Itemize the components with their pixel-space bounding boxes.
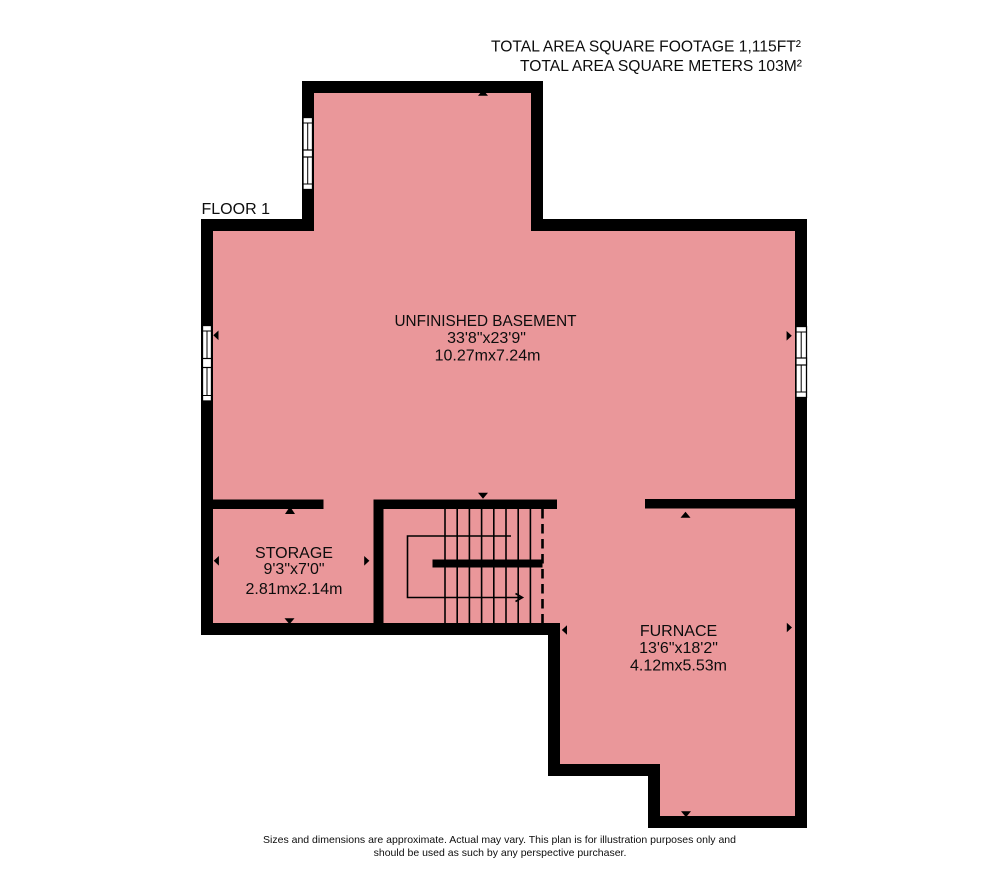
svg-text:STORAGE: STORAGE (255, 545, 333, 562)
svg-text:TOTAL AREA SQUARE FOOTAGE 1,11: TOTAL AREA SQUARE FOOTAGE 1,115FT² (491, 39, 802, 56)
svg-text:FLOOR 1: FLOOR 1 (202, 201, 271, 218)
svg-text:10.27mx7.24m: 10.27mx7.24m (435, 348, 541, 365)
svg-text:UNFINISHED BASEMENT: UNFINISHED BASEMENT (395, 313, 577, 330)
svg-text:33'8"x23'9": 33'8"x23'9" (447, 330, 526, 347)
svg-text:9'3"x7'0": 9'3"x7'0" (263, 561, 324, 578)
svg-text:TOTAL AREA SQUARE METERS 103M²: TOTAL AREA SQUARE METERS 103M² (520, 58, 803, 75)
svg-text:4.12mx5.53m: 4.12mx5.53m (630, 658, 727, 675)
svg-text:should be used as such by any: should be used as such by any perspectiv… (374, 847, 627, 859)
svg-text:FURNACE: FURNACE (640, 623, 717, 640)
svg-text:2.81mx2.14m: 2.81mx2.14m (246, 581, 343, 598)
svg-text:Sizes and dimensions are appro: Sizes and dimensions are approximate. Ac… (263, 834, 736, 846)
svg-text:13'6"x18'2": 13'6"x18'2" (639, 640, 718, 657)
